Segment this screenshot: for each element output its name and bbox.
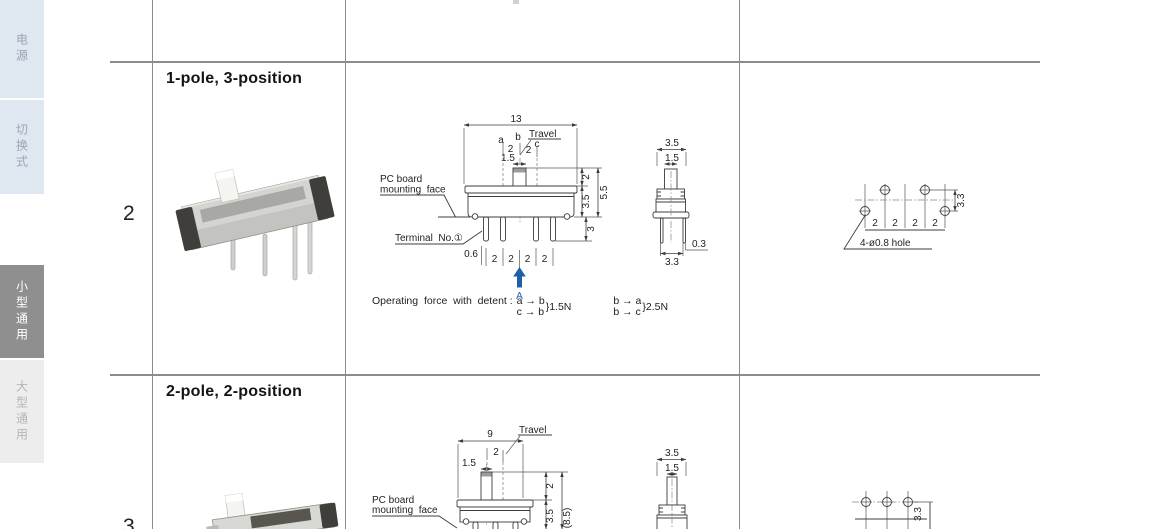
hole-pitch-1: 2 (892, 218, 898, 229)
sidebar-tab-switching[interactable]: 切换式 (0, 100, 44, 194)
pcb-mounting-face-callout: PC board mounting face (380, 174, 470, 217)
travel-dimension: a b c Travel 2 2 1.5 (498, 129, 561, 164)
switch-photo (200, 473, 350, 529)
dim-total-height: (8.5) (562, 508, 573, 529)
dim-width: 9 (487, 429, 493, 440)
sidebar-tab-small-general[interactable]: 小型通用 (0, 265, 44, 358)
table-vline-2 (345, 0, 346, 529)
switch-body (202, 481, 338, 529)
hole-size-callout: 4-ø0.8 hole (844, 216, 932, 250)
pcb-mounting-face-callout: PC board mounting face (372, 495, 457, 528)
sidebar-tab-label: 小型通用 (14, 280, 31, 344)
holes (860, 496, 914, 508)
sidebar-tab-label: 大型通用 (14, 380, 31, 444)
operating-force-note: Operating force with detent : a → b c → … (372, 296, 668, 318)
force-g1-line2: c → b (517, 307, 545, 318)
leg-thickness-dimension: 0.3 (683, 239, 708, 250)
front-view-drawing: 9 Travel 2 1.5 PC board mounting (360, 415, 620, 529)
row-title: 1-pole, 3-position (166, 70, 302, 88)
hole-pattern-drawing: 3.3 2 2 2 2 4-ø0.8 hole (830, 172, 970, 257)
pitch-2: 2 (525, 254, 531, 265)
sidebar-tab-label: 切换式 (14, 123, 31, 171)
table-vline-3 (739, 0, 740, 529)
dim-knob-width: 1.5 (462, 458, 476, 469)
table-hline-row3 (110, 374, 1040, 376)
row-number: 3 (123, 515, 135, 529)
table-vline-1 (152, 0, 153, 529)
terminal-callout: Terminal No.① (395, 231, 482, 244)
cropped-drawing-fragment (513, 0, 519, 4)
switch-photo (175, 160, 345, 300)
dim-side-width: 3.5 (665, 448, 679, 459)
pitch-1: 2 (508, 254, 514, 265)
force-group-2: b → a b → c (613, 296, 641, 318)
force-group-1: a → b c → b (517, 296, 545, 318)
switch-outline (457, 472, 533, 529)
force-label: Operating force with detent : (372, 296, 513, 307)
dim-pin-offset: 0.6 (464, 249, 478, 260)
sidebar-tab-power[interactable]: 电源 (0, 0, 44, 98)
dim-leg-span: 3.3 (665, 257, 679, 267)
side-outline (653, 169, 689, 243)
hole-pitch-0: 2 (872, 218, 878, 229)
side-view-drawing: 3.5 1.5 0.3 3.3 (638, 132, 723, 267)
dim-body-height: 3.5 (545, 509, 556, 523)
sidebar-tab-large-general[interactable]: 大型通用 (0, 360, 44, 463)
terminal-label: Terminal No.① (395, 233, 463, 244)
dim-row-gap: 3.3 (913, 507, 924, 521)
dim-body-height: 3.5 (581, 194, 592, 208)
pitch-0: 2 (492, 254, 498, 265)
dim-side-knob: 1.5 (665, 463, 679, 474)
position-b: b (515, 132, 521, 143)
pin-pitch-dimension: 0.6 2 2 2 2 (464, 246, 553, 268)
force-g2-line2: b → c (613, 307, 641, 318)
travel-dimension: Travel 2 1.5 (462, 425, 552, 469)
sidebar-tab-label: 电源 (14, 33, 31, 65)
hole-pattern-drawing: 3.3 (840, 483, 960, 529)
travel-bc: 2 (526, 145, 532, 156)
dim-row-gap: 3.3 (956, 193, 967, 207)
dim-side-width: 3.5 (665, 138, 679, 149)
pitch-3: 2 (542, 254, 548, 265)
pcb-label-line1: PC board (380, 174, 422, 185)
travel-value: 2 (493, 447, 499, 458)
side-view-drawing: 3.5 1.5 (633, 443, 718, 529)
travel-label: Travel (519, 425, 546, 436)
dim-leg-thickness: 0.3 (692, 239, 706, 250)
row-number: 2 (123, 202, 135, 226)
dim-knob-height: 2 (545, 483, 556, 489)
leg-span-dimension: 3.3 (661, 243, 684, 267)
pcb-label-line2: mounting face (372, 505, 438, 516)
force-g2-value: }2.5N (642, 301, 668, 313)
hole-size-label: 4-ø0.8 hole (860, 238, 911, 249)
front-view-drawing: 13 a b c Travel 2 2 1.5 (360, 110, 620, 305)
force-g1-value: }1.5N (546, 301, 572, 313)
dim-knob-height: 2 (581, 174, 592, 180)
dim-side-knob: 1.5 (665, 153, 679, 164)
dim-width: 13 (510, 114, 522, 125)
catalog-page: 电源 切换式 小型通用 大型通用 2 1-pole, 3-position (0, 0, 1150, 529)
travel-label: Travel (529, 129, 556, 140)
dim-pin-length: 3 (586, 226, 597, 232)
row-title: 2-pole, 2-position (166, 383, 302, 401)
hole-pitch-2: 2 (912, 218, 918, 229)
table-hline-row2 (110, 61, 1040, 63)
pcb-label-line2: mounting face (380, 185, 446, 196)
side-outline (657, 477, 687, 529)
hole-pitch-3: 2 (932, 218, 938, 229)
dim-total-height: 5.5 (599, 185, 610, 199)
switch-outline (465, 168, 577, 241)
